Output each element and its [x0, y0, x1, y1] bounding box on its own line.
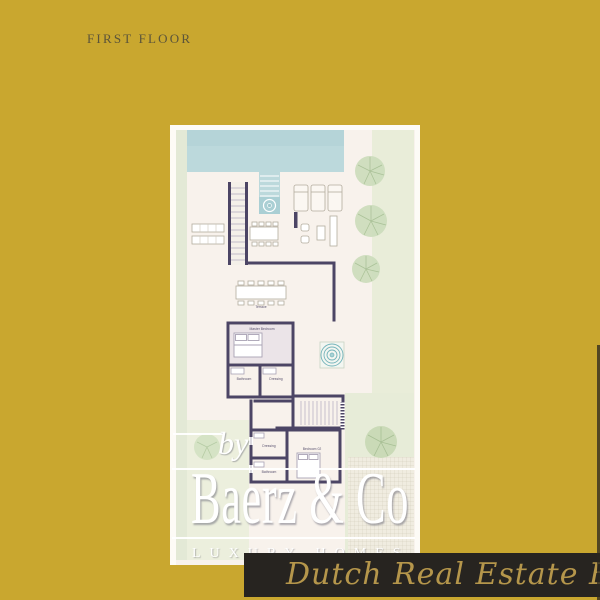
room-label-terrace: Terrace — [255, 305, 266, 309]
window-hatch — [341, 402, 345, 428]
room-label-master-bedroom: Master Bedroom — [249, 327, 274, 331]
tree-icon — [194, 434, 220, 460]
frame-left — [170, 125, 176, 565]
logo-rule-bottom — [172, 537, 415, 539]
sub-brand-ribbon: Dutch Real Estate Egypt — [244, 553, 600, 597]
frame-right — [415, 125, 420, 565]
logo-by-label: by — [218, 427, 248, 459]
dining-table — [250, 222, 278, 246]
master-bed — [234, 333, 262, 357]
room-label-bedroom-02: Bedroom 02 — [303, 447, 322, 451]
tree-icon — [352, 255, 380, 283]
outdoor-dining — [236, 281, 286, 305]
logo-rule-top — [173, 433, 223, 435]
floor-plan-page: FIRST FLOOR — [0, 0, 600, 600]
frame-top — [170, 125, 420, 130]
room-label-dressing-1: Dressing — [269, 377, 282, 381]
sub-brand-name: Dutch Real Estate Egypt — [286, 557, 600, 592]
sun-loungers — [294, 185, 342, 211]
tree-icon — [355, 156, 385, 186]
page-title: FIRST FLOOR — [87, 31, 192, 47]
jacuzzi-circle — [259, 197, 280, 214]
room-label-dressing-2: Dressing — [262, 444, 275, 448]
door-leaf — [294, 212, 298, 228]
room-label-bathroom-1: Bathroom — [237, 377, 252, 381]
staircase — [228, 182, 248, 265]
tree-icon — [355, 205, 387, 237]
garden-left-strip — [176, 130, 187, 560]
tree-icon — [365, 426, 397, 458]
brand-name: Baerz & Co — [191, 462, 409, 536]
outdoor-spa — [320, 342, 344, 368]
